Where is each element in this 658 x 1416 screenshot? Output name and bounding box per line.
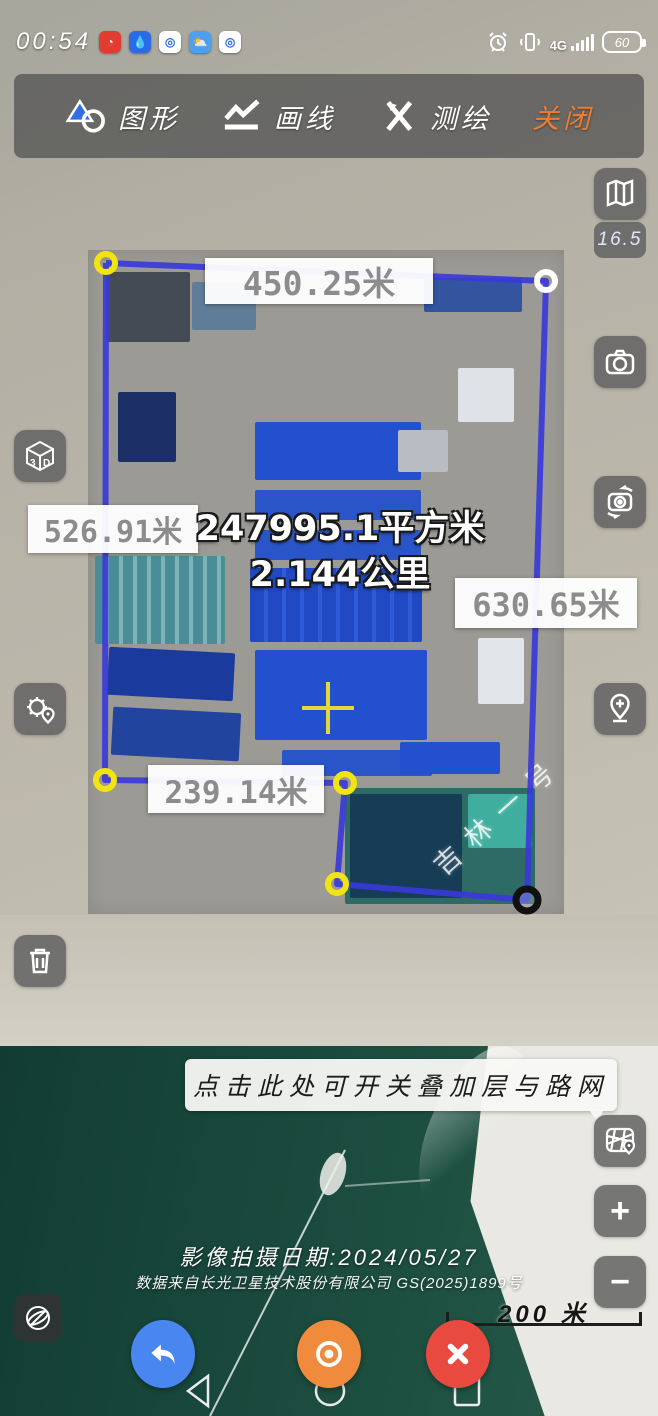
building — [118, 392, 176, 462]
road-layers-button[interactable] — [594, 1115, 646, 1167]
camera-button[interactable] — [594, 336, 646, 388]
alarm-icon — [486, 30, 510, 54]
undo-button[interactable] — [131, 1320, 195, 1388]
building — [400, 742, 500, 774]
edge-length-label: 450.25米 — [205, 258, 433, 304]
polyline-icon — [220, 94, 264, 138]
road-layers-icon — [602, 1123, 638, 1159]
camera-switch-icon — [602, 484, 638, 520]
building — [255, 650, 427, 740]
shapes-icon — [64, 94, 108, 138]
locate-button[interactable] — [297, 1320, 361, 1388]
blue-drop-app-icon: 💧 — [129, 31, 151, 53]
camera-icon — [602, 344, 638, 380]
view-3d-button[interactable]: 3 D — [14, 430, 66, 482]
cube-3d-icon: 3 D — [22, 438, 58, 474]
jilin1-logo — [14, 1294, 62, 1342]
building — [458, 368, 514, 422]
zoom-in-button[interactable]: + — [594, 1185, 646, 1237]
data-source: 数据来自长光卫星技术股份有限公司 GS(2025)1899号 — [0, 1272, 658, 1293]
capture-date: 影像拍摄日期:2024/05/27 — [0, 1240, 658, 1272]
undo-arrow-icon — [144, 1335, 182, 1373]
tool-label: 画线 — [274, 97, 336, 136]
scale-bar — [446, 1312, 642, 1326]
map-book-button[interactable] — [594, 168, 646, 220]
tool-label: 图形 — [118, 97, 180, 136]
measure-settings-button[interactable] — [14, 683, 66, 735]
survey-icon — [376, 94, 420, 138]
close-measure-button[interactable] — [426, 1320, 490, 1388]
zoom-level-badge: 16.5 — [594, 222, 646, 258]
building — [255, 422, 421, 480]
gear-pin-icon — [22, 691, 58, 727]
tool-close[interactable]: 关闭 — [532, 97, 594, 136]
tool-label: 测绘 — [430, 97, 492, 136]
network-type: 4G — [550, 40, 567, 51]
target-icon — [310, 1335, 348, 1373]
trash-icon — [22, 943, 58, 979]
banner-text: 点击此处可开关叠加层与路网 — [193, 1067, 609, 1103]
brand — [14, 1294, 68, 1342]
signal-icon — [571, 33, 594, 51]
camera-switch-button[interactable] — [594, 476, 646, 528]
battery-level: 60 — [615, 35, 629, 50]
app-screen: 吉林一号 450.25米 526.91米 630.65米 239.14米 247… — [0, 0, 658, 1416]
add-pin-icon — [602, 691, 638, 727]
building — [478, 638, 524, 704]
status-bar: 00:54 ◔ 💧 ◎ ⛅ ◎ 4G 60 — [0, 22, 658, 62]
vibrate-icon — [518, 30, 542, 54]
perimeter-label: 2.144公里 — [140, 546, 540, 597]
svg-text:D: D — [43, 458, 50, 469]
tool-label: 关闭 — [532, 97, 594, 136]
area-label: 247995.1平方米 — [140, 500, 540, 551]
ring-app-icon: ◎ — [159, 31, 181, 53]
svg-text:3: 3 — [30, 458, 36, 469]
tool-shapes[interactable]: 图形 — [64, 94, 180, 138]
delete-button[interactable] — [14, 935, 66, 987]
red-app-icon: ◔ — [99, 31, 121, 53]
map-book-icon — [602, 176, 638, 212]
layers-toggle-banner[interactable]: 点击此处可开关叠加层与路网 — [185, 1059, 617, 1111]
ring-app-icon: ◎ — [219, 31, 241, 53]
battery-icon: 60 — [602, 31, 642, 53]
weather-app-icon: ⛅ — [189, 31, 211, 53]
drawing-toolbar: 图形 画线 测绘 关闭 — [14, 74, 644, 158]
building — [106, 272, 190, 342]
tool-polyline[interactable]: 画线 — [220, 94, 336, 138]
plus-icon: + — [610, 1194, 630, 1228]
add-pin-button[interactable] — [594, 683, 646, 735]
building — [398, 430, 448, 472]
nav-back-glyph[interactable] — [182, 1372, 216, 1410]
close-x-icon — [439, 1335, 477, 1373]
tool-survey[interactable]: 测绘 — [376, 94, 492, 138]
zoom-level: 16.5 — [598, 229, 643, 251]
building — [424, 278, 522, 312]
edge-length-label: 239.14米 — [148, 765, 324, 813]
building — [107, 647, 235, 702]
clock: 00:54 — [16, 28, 91, 56]
building — [111, 707, 241, 762]
shoreline — [0, 915, 658, 1055]
